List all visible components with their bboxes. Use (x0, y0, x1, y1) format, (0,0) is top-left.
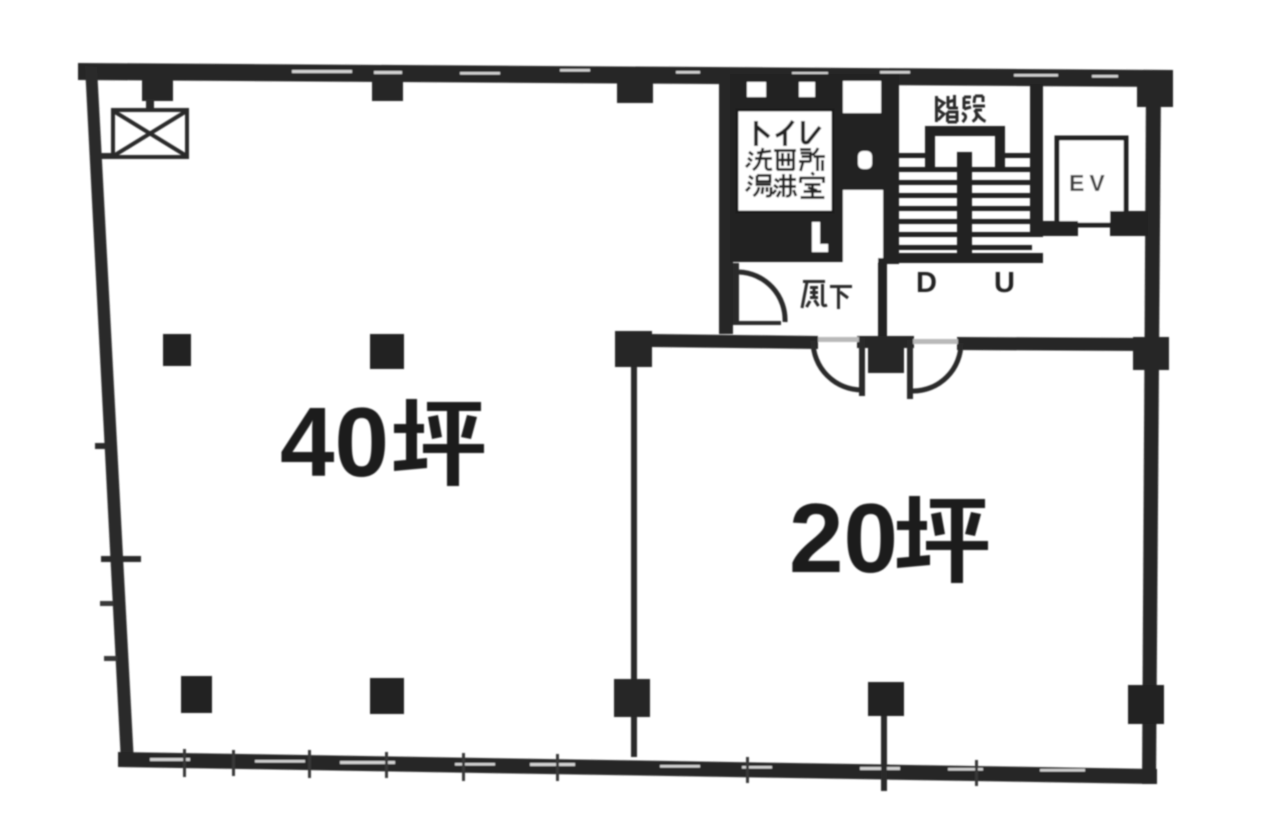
svg-text:20: 20 (789, 483, 898, 593)
svg-text:D: D (916, 267, 937, 299)
svg-text:EV: EV (1069, 170, 1110, 196)
svg-text:40: 40 (280, 387, 389, 497)
svg-text:U: U (994, 267, 1015, 299)
